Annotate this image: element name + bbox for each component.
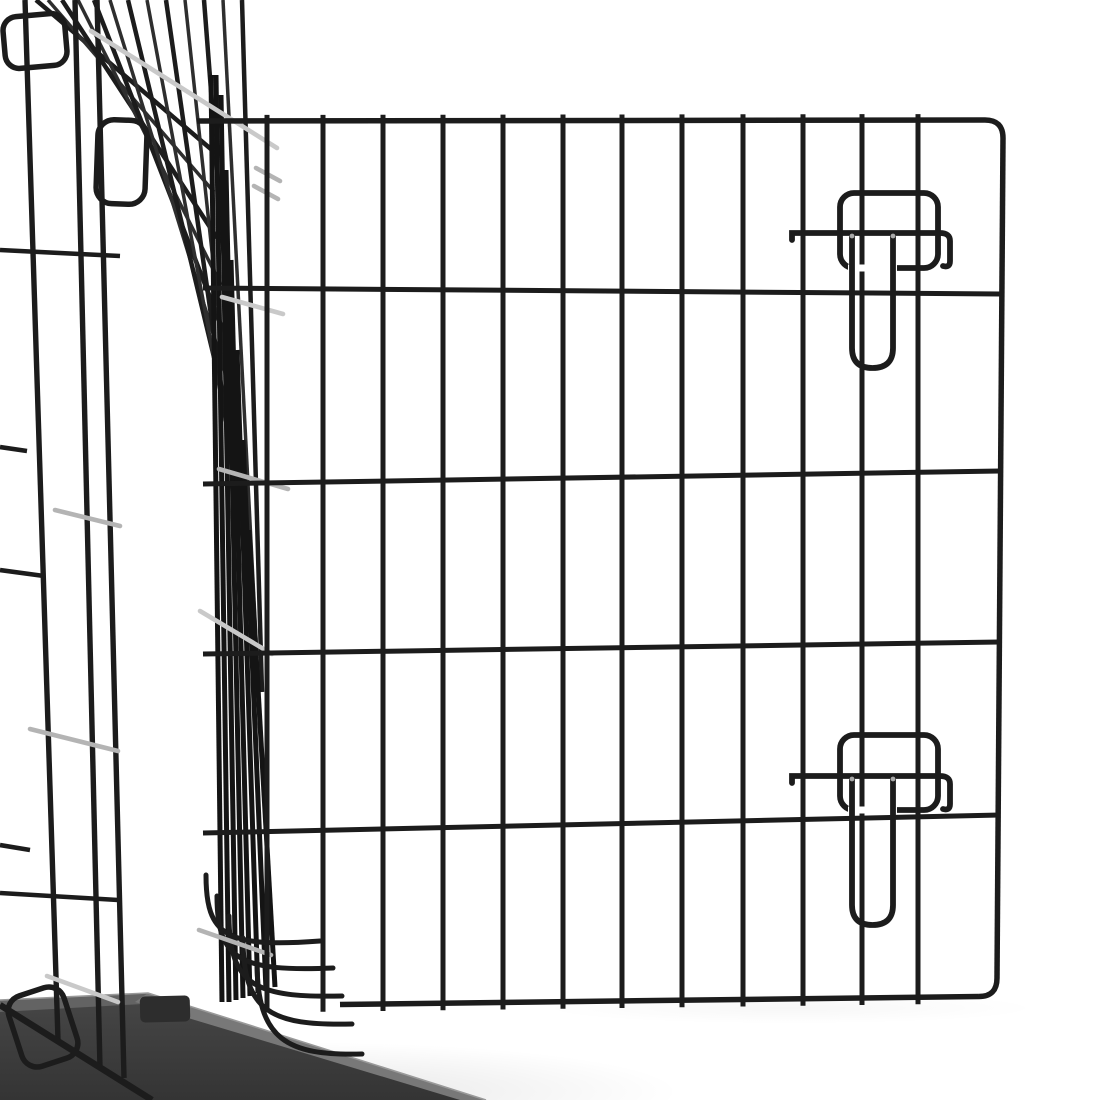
open-wire-door-panel — [197, 114, 1003, 1012]
side-panel-horizontal-wire — [0, 570, 44, 576]
side-panel-vertical-wire — [97, 0, 124, 1078]
slide-bolt-latch-lower — [792, 735, 950, 925]
dog-crate-product-photo — [0, 0, 1100, 1100]
latch-rivet-dot — [891, 777, 896, 782]
tray-handle-notch — [140, 995, 191, 1022]
latch-slide-bar-with-hook — [792, 776, 950, 809]
side-panel-horizontal-wire — [0, 893, 118, 900]
door-top-right-corner — [985, 120, 1003, 138]
silver-hinge-tie-wire — [30, 729, 118, 751]
slide-bolt-latch-upper — [792, 193, 950, 368]
crate-body-left — [0, 0, 362, 1100]
latch-drop-pin-u — [852, 233, 893, 368]
side-panel-horizontal-wire — [0, 845, 30, 850]
door-top-rail — [197, 120, 985, 121]
latch-rivet-dot — [850, 234, 855, 239]
side-panel-vertical-wire — [25, 0, 58, 1040]
product-photo-stage — [0, 0, 1100, 1100]
latch-rivet-dot — [891, 234, 896, 239]
side-panel-horizontal-wire — [0, 447, 27, 451]
latch-rivet-dot — [850, 777, 855, 782]
door-right-edge-wire — [997, 138, 1003, 978]
latch-slide-bar-with-hook — [792, 233, 950, 266]
latch-drop-pin-u — [852, 776, 893, 925]
door-bottom-right-corner — [979, 978, 997, 997]
